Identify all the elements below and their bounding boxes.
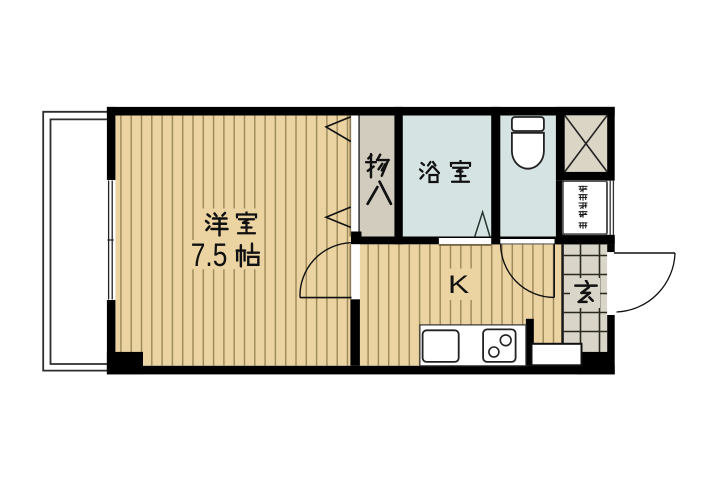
svg-text:K: K: [448, 271, 469, 299]
svg-text:7.5: 7.5: [191, 237, 228, 273]
